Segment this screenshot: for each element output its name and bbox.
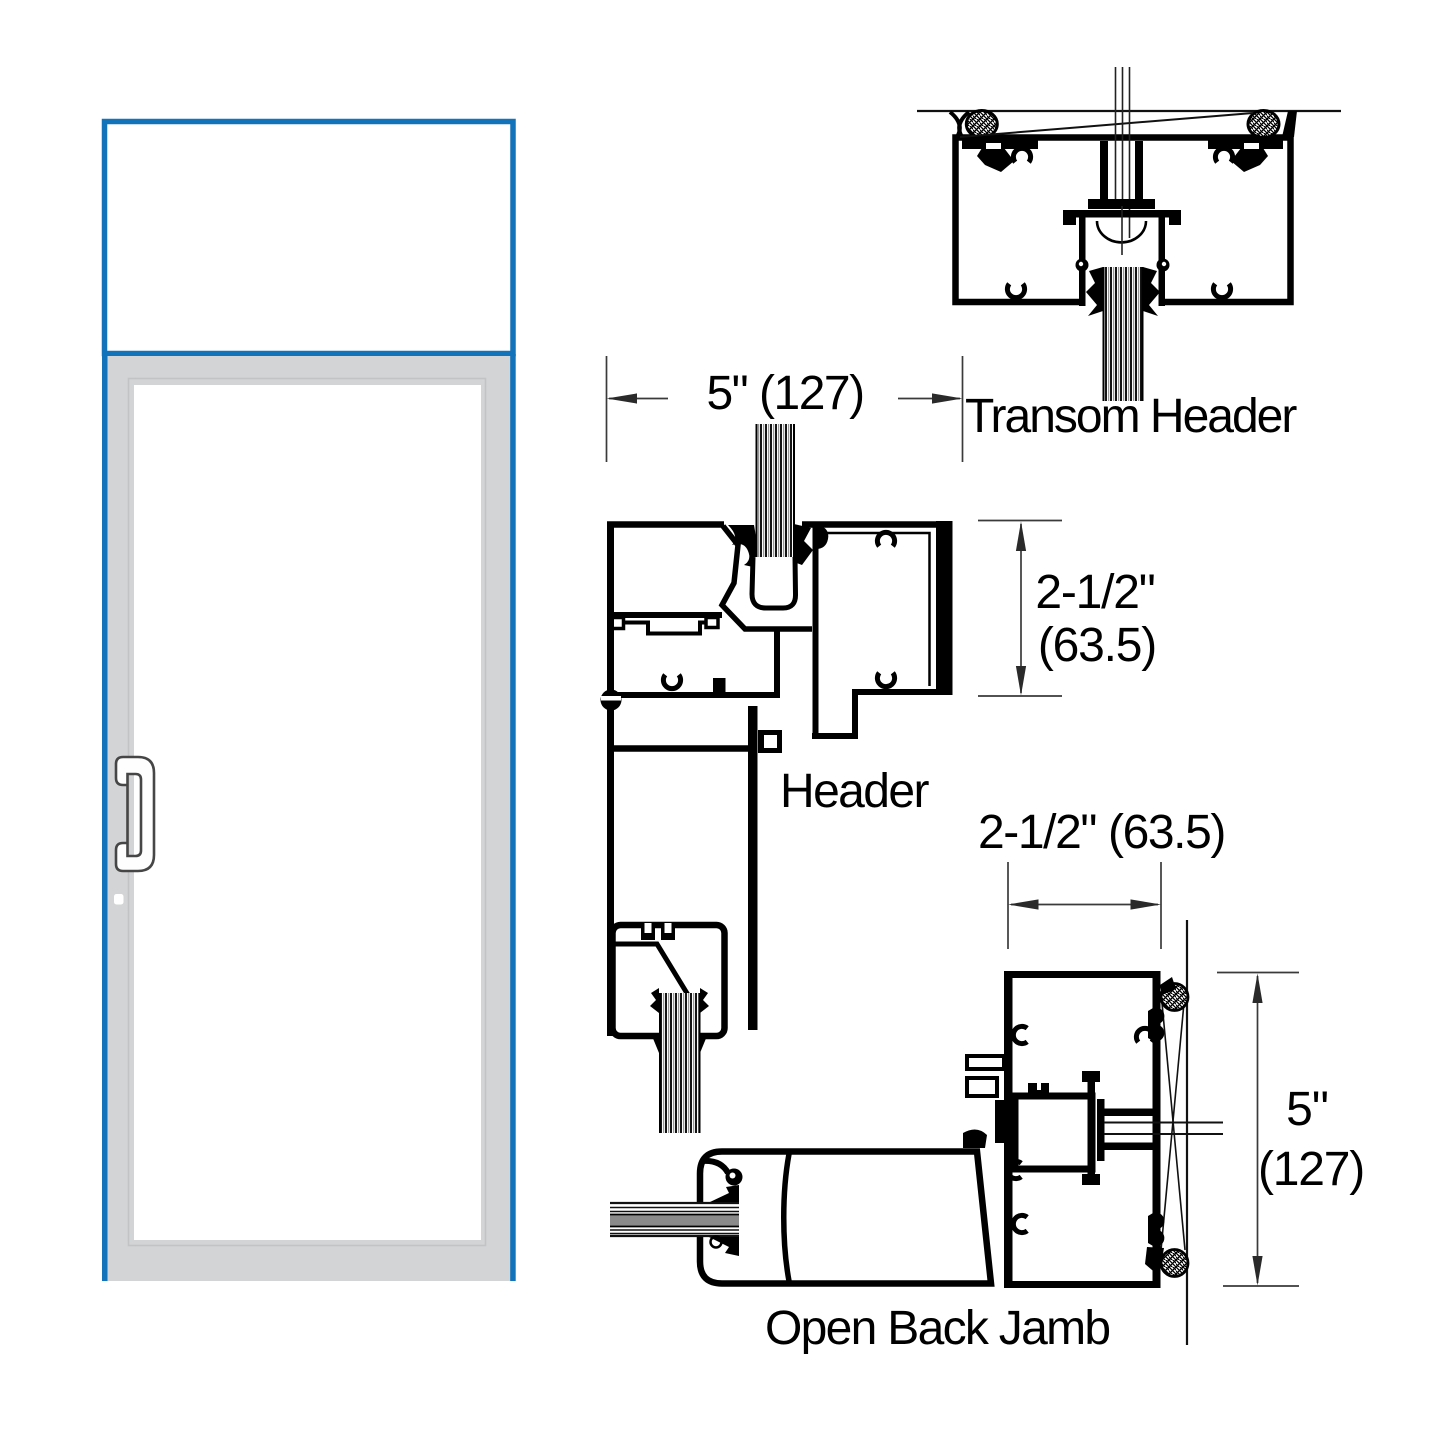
svg-text:5": 5" — [1286, 1083, 1328, 1136]
svg-text:2-1/2" (63.5): 2-1/2" (63.5) — [978, 806, 1225, 859]
svg-text:(63.5): (63.5) — [1038, 619, 1156, 672]
svg-text:(127): (127) — [1258, 1143, 1364, 1196]
svg-text:5" (127): 5" (127) — [706, 367, 863, 420]
svg-text:Transom Header: Transom Header — [965, 390, 1297, 443]
svg-text:Open Back Jamb: Open Back Jamb — [765, 1302, 1109, 1355]
svg-text:2-1/2": 2-1/2" — [1035, 566, 1154, 619]
svg-text:Header: Header — [780, 765, 929, 818]
